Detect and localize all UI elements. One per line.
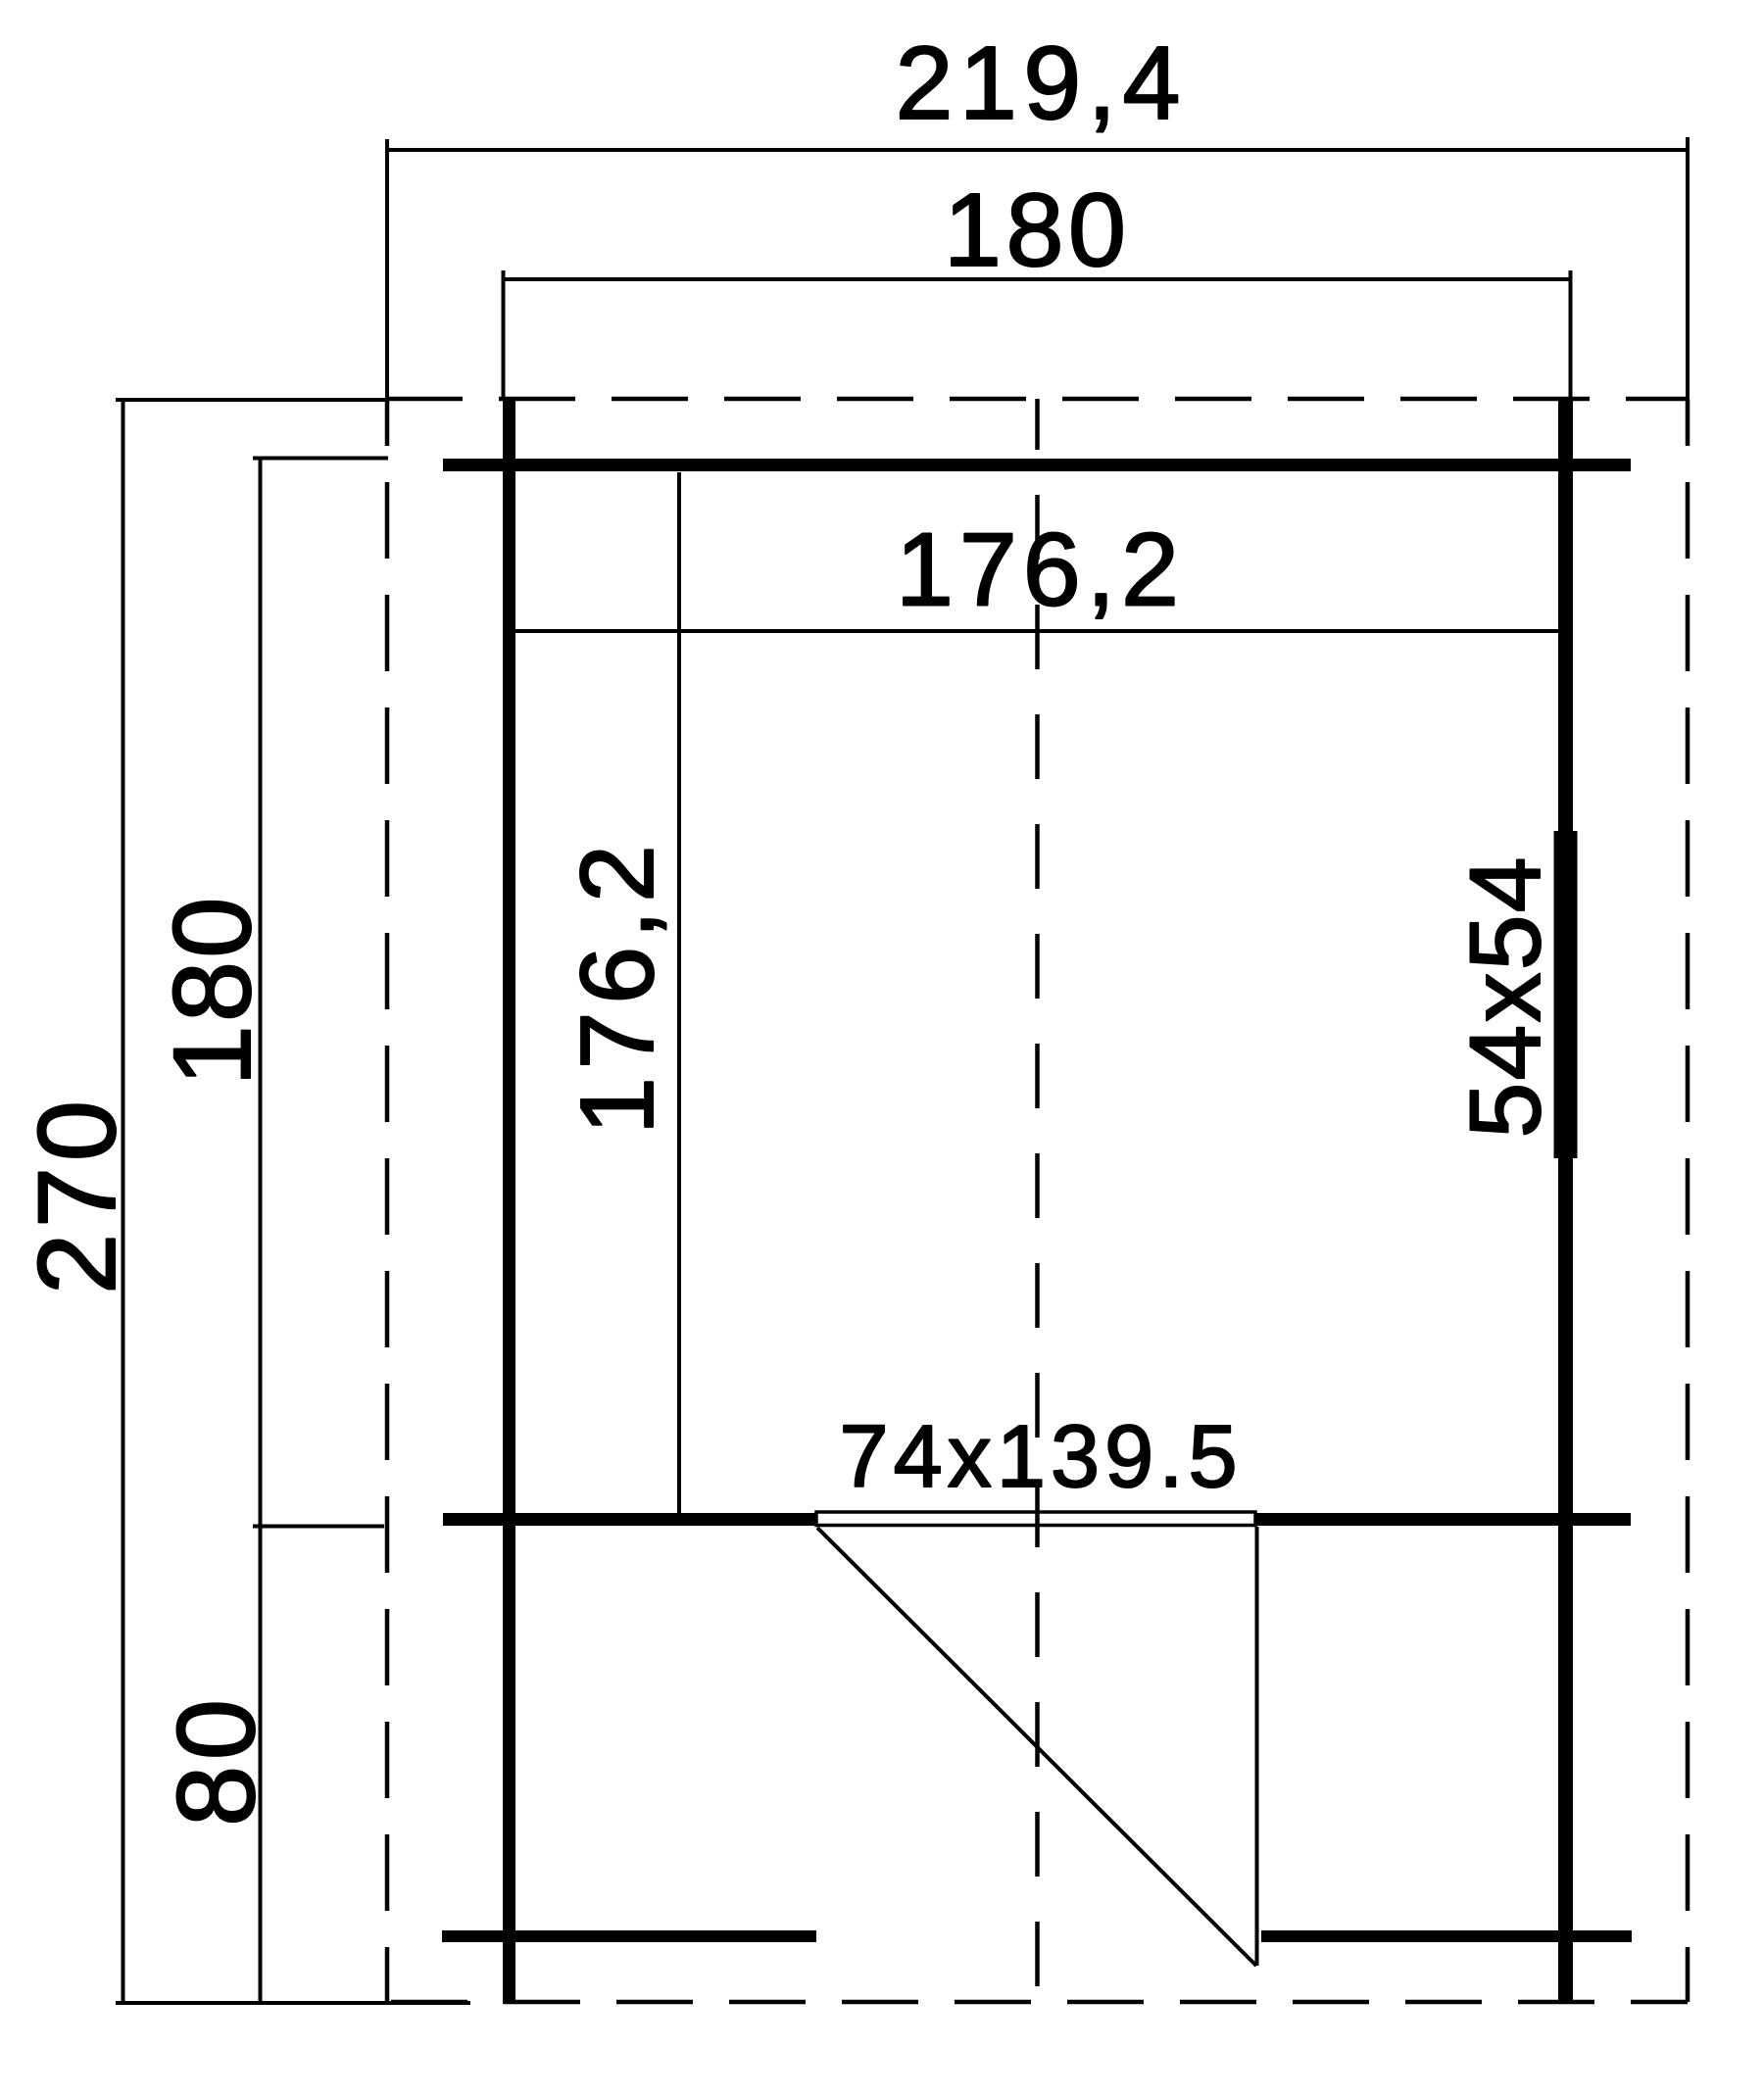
svg-text:270: 270 — [16, 1100, 138, 1294]
svg-text:74x139.5: 74x139.5 — [840, 1408, 1238, 1506]
svg-text:219,4: 219,4 — [896, 25, 1181, 141]
svg-text:180: 180 — [944, 172, 1126, 288]
svg-text:176,2: 176,2 — [896, 512, 1179, 628]
svg-text:180: 180 — [151, 898, 273, 1087]
svg-text:54x54: 54x54 — [1449, 857, 1561, 1139]
svg-text:176,2: 176,2 — [560, 845, 675, 1135]
